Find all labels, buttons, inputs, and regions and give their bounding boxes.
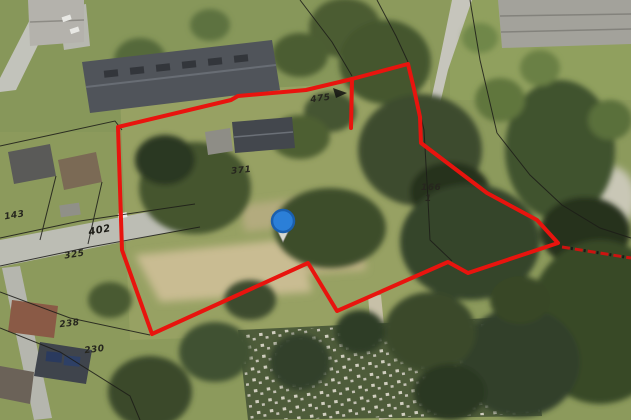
pin-head <box>272 210 294 232</box>
solar-panel <box>46 351 63 363</box>
house-bottom-3 <box>0 366 34 404</box>
parcel-label: 166 <box>421 183 441 193</box>
parcel-label: 1 <box>425 194 432 204</box>
building-top-right <box>498 0 631 48</box>
aerial-map-viewport[interactable]: 371 402 325 143 238 230 475 166 1 <box>0 0 631 420</box>
house-bottom-1 <box>8 300 58 338</box>
boundary-spike <box>351 79 352 128</box>
solar-panel <box>64 355 81 367</box>
aerial-map[interactable]: 371 402 325 143 238 230 475 166 1 <box>0 0 631 420</box>
garage-center <box>205 128 233 155</box>
building-top-left <box>28 0 84 46</box>
parcel-label: 371 <box>231 165 252 177</box>
